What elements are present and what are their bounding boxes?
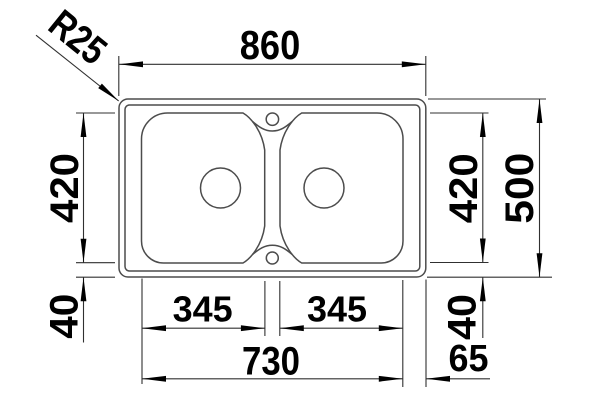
svg-text:860: 860 — [240, 22, 301, 68]
svg-text:65: 65 — [449, 338, 489, 380]
svg-text:730: 730 — [242, 339, 300, 383]
svg-text:345: 345 — [173, 289, 233, 330]
svg-text:500: 500 — [498, 153, 542, 224]
svg-text:40: 40 — [441, 294, 485, 340]
svg-text:40: 40 — [43, 294, 87, 339]
svg-text:345: 345 — [307, 289, 367, 330]
svg-text:420: 420 — [442, 153, 486, 223]
svg-text:420: 420 — [43, 153, 87, 223]
